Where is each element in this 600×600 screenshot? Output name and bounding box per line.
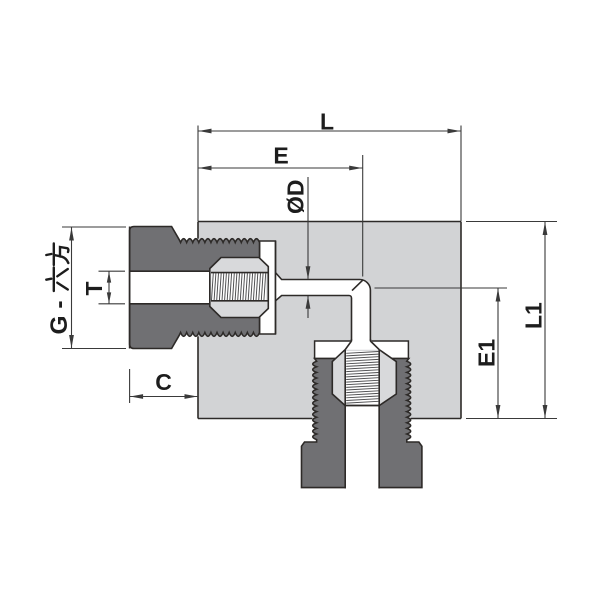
svg-text:L1: L1	[521, 302, 547, 329]
svg-text:E1: E1	[474, 339, 500, 367]
svg-text:T: T	[81, 281, 107, 295]
svg-text:ØD: ØD	[283, 180, 309, 215]
svg-text:L: L	[320, 109, 334, 135]
svg-text:G -: G -	[46, 300, 73, 334]
svg-text:E: E	[273, 143, 288, 169]
svg-text:C: C	[155, 369, 172, 395]
